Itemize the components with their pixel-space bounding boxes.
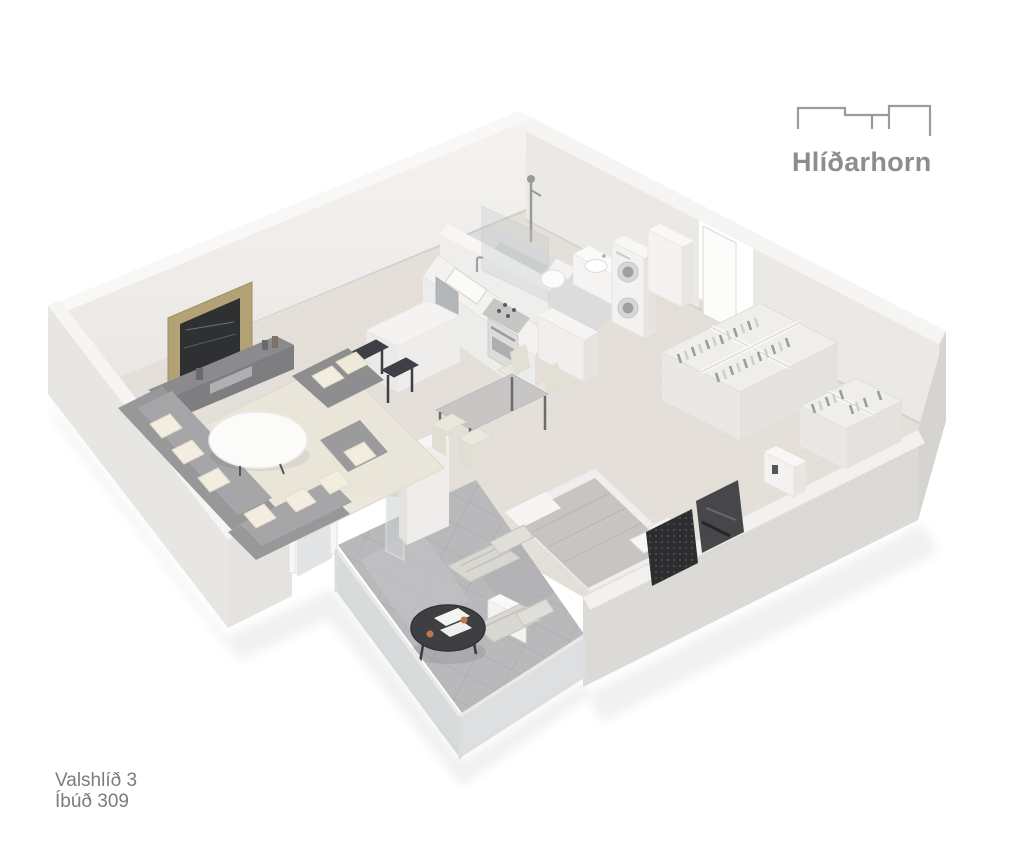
brand-logo: Hlíðarhorn [792, 102, 962, 178]
buildings-skyline-icon [792, 102, 942, 142]
brand-name: Hlíðarhorn [792, 147, 962, 178]
address-block: Valshlíð 3 Íbúð 309 [55, 770, 137, 812]
address-street: Valshlíð 3 [55, 770, 137, 791]
address-apartment: Íbúð 309 [55, 791, 137, 812]
coffee-table [209, 412, 310, 476]
entrance-door [703, 226, 736, 331]
balcony-table [410, 605, 486, 664]
floor-plan-page: Hlíðarhorn Valshlíð 3 Íbúð 309 [0, 0, 1012, 867]
